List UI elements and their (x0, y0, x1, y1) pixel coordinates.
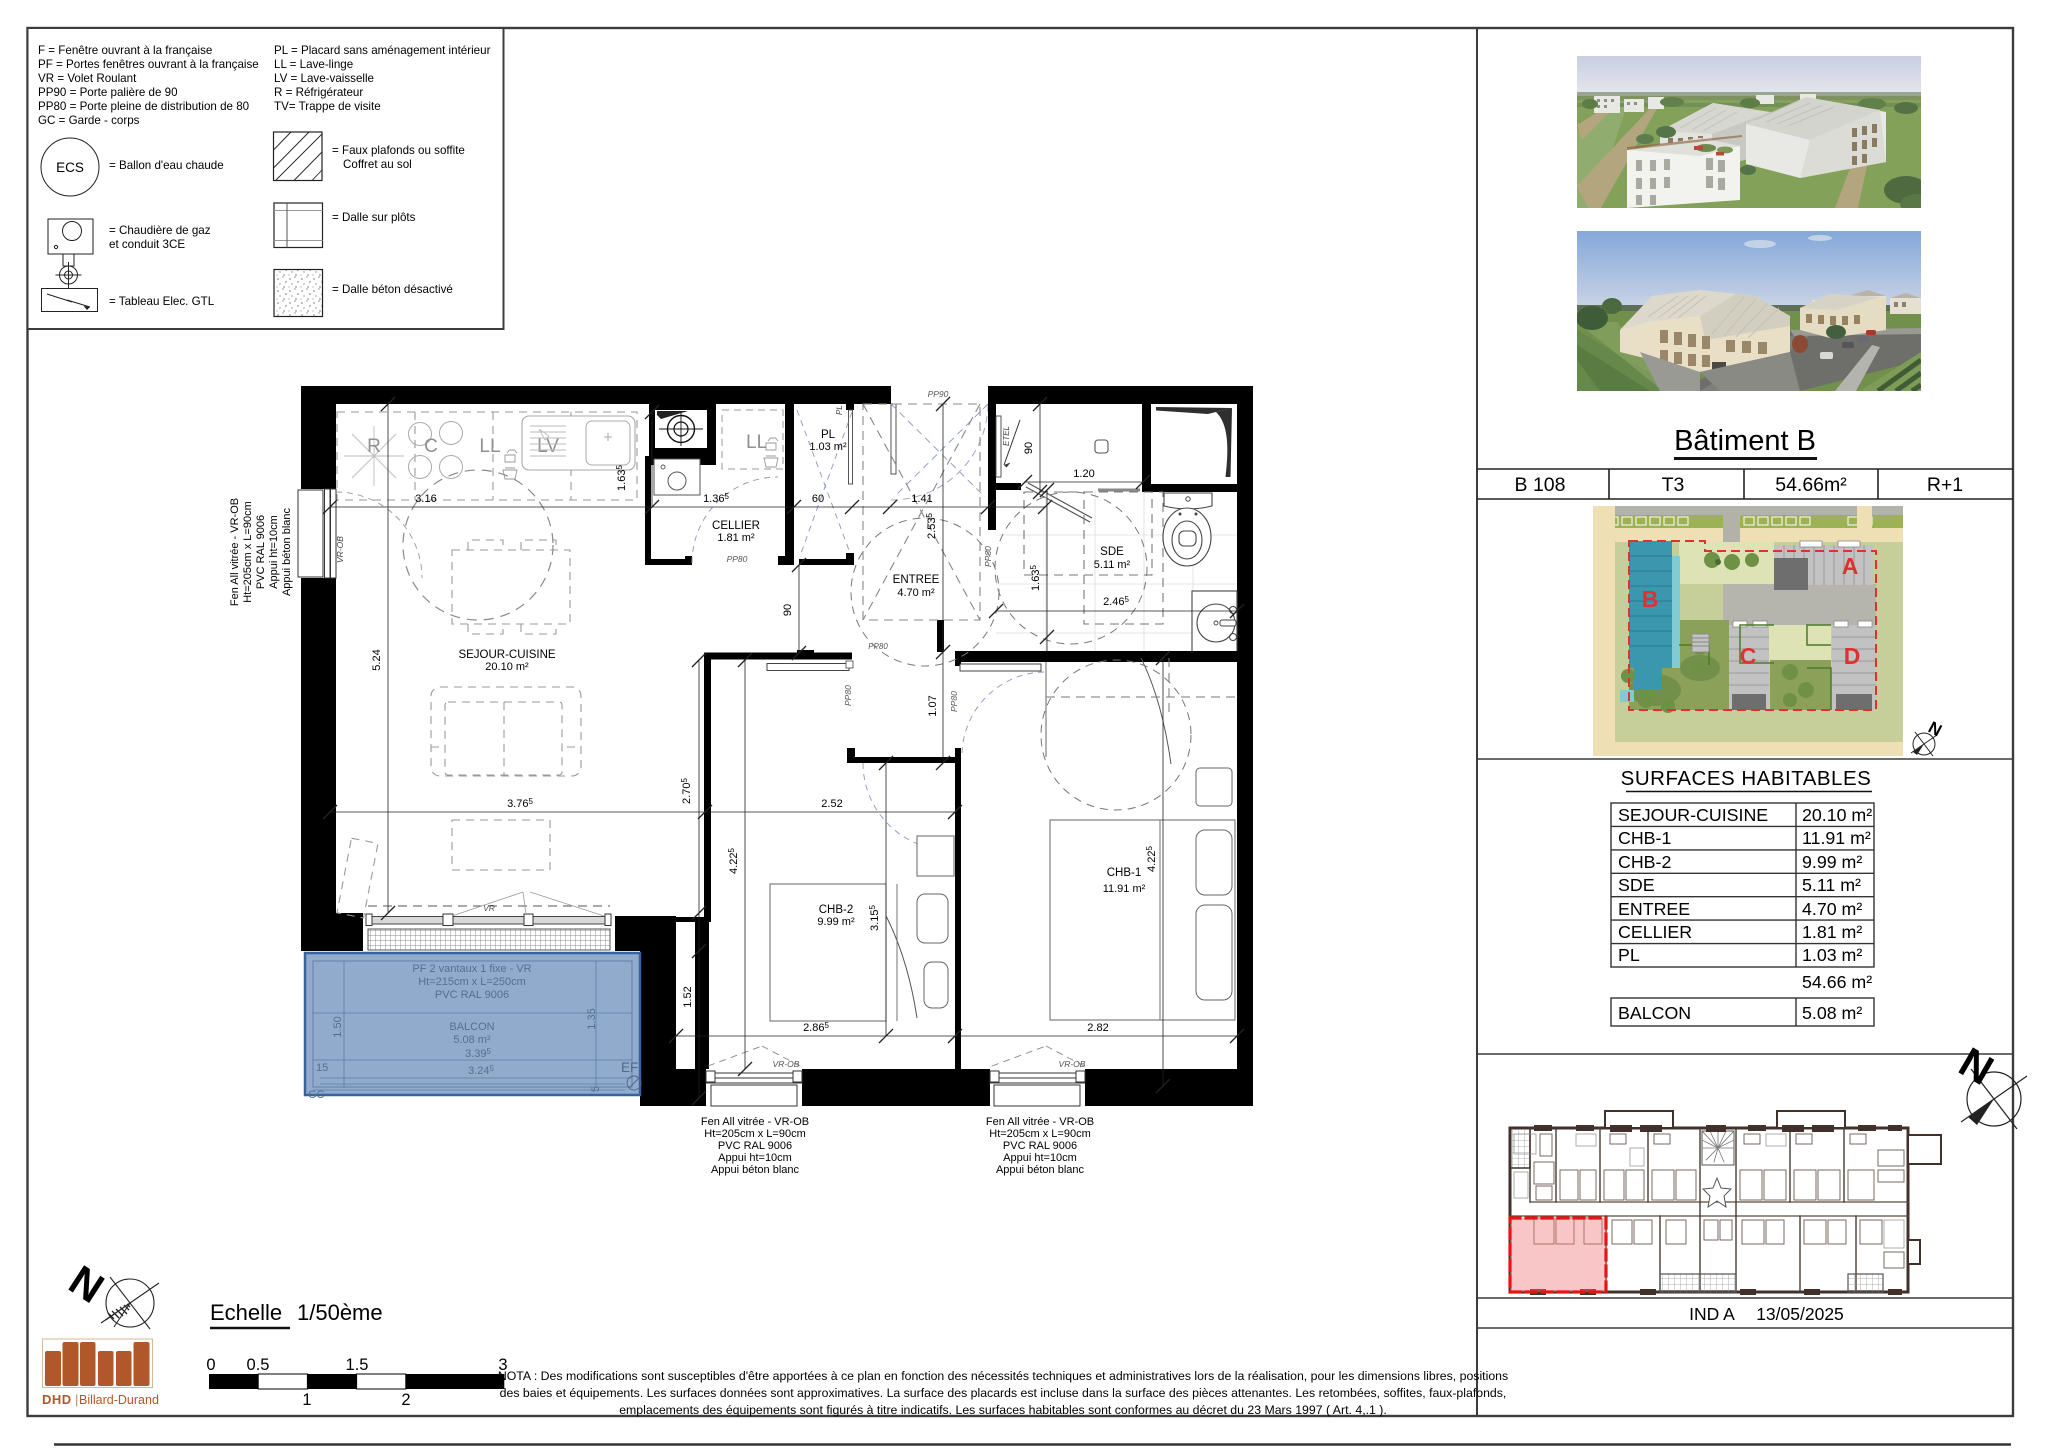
svg-text:PL: PL (1618, 945, 1640, 965)
svg-text:IND A: IND A (1689, 1304, 1735, 1324)
svg-text:LL = Lave-linge: LL = Lave-linge (274, 58, 353, 71)
svg-text:VR-OB: VR-OB (1059, 1059, 1086, 1069)
svg-text:R: R (367, 436, 381, 457)
svg-text:PF 2 vantaux 1 fixe - VR: PF 2 vantaux 1 fixe - VR (412, 963, 531, 975)
svg-text:5.08 m²: 5.08 m² (1802, 1003, 1862, 1023)
svg-text:20.10 m²: 20.10 m² (1802, 805, 1872, 825)
svg-text:1.81 m²: 1.81 m² (717, 532, 755, 544)
svg-text:N: N (1952, 1038, 2002, 1094)
svg-text:CELLIER: CELLIER (1618, 922, 1692, 942)
svg-text:B 108: B 108 (1515, 474, 1566, 496)
svg-text:5.08 m²: 5.08 m² (453, 1034, 491, 1046)
svg-text:1: 1 (302, 1391, 311, 1409)
svg-text:des baies et équipements. Les: des baies et équipements. Les surfaces d… (500, 1386, 1507, 1400)
svg-text:Ht=205cm x L=90cm: Ht=205cm x L=90cm (989, 1128, 1091, 1140)
svg-text:PP80 = Porte pleine de distrib: PP80 = Porte pleine de distribution de 8… (38, 100, 249, 113)
svg-text:= Tableau Elec. GTL: = Tableau Elec. GTL (109, 295, 215, 308)
svg-text:2.52: 2.52 (821, 798, 842, 810)
svg-text:11.91 m²: 11.91 m² (1103, 883, 1146, 895)
svg-text:3.765: 3.765 (507, 797, 533, 810)
svg-text:Coffret au sol: Coffret au sol (343, 158, 412, 171)
svg-text:Ht=215cm x L=250cm: Ht=215cm x L=250cm (418, 976, 526, 988)
svg-text:PF = Portes fenêtres ouvrant à: PF = Portes fenêtres ouvrant à la frança… (38, 58, 259, 71)
svg-text:1.03 m²: 1.03 m² (809, 441, 847, 453)
svg-text:LL: LL (746, 432, 767, 453)
svg-text:BALCON: BALCON (1618, 1003, 1691, 1023)
svg-text:Ht=205cm x L=90cm: Ht=205cm x L=90cm (704, 1128, 806, 1140)
svg-text:0: 0 (206, 1356, 215, 1374)
svg-text:TV= Trappe de visite: TV= Trappe de visite (274, 100, 381, 113)
svg-text:4.70 m²: 4.70 m² (897, 587, 935, 599)
svg-text:PP80: PP80 (949, 691, 959, 712)
svg-text:Fen All vitrée - VR-OB: Fen All vitrée - VR-OB (986, 1116, 1094, 1128)
svg-text:9.99 m²: 9.99 m² (817, 916, 855, 928)
svg-text:13/05/2025: 13/05/2025 (1756, 1304, 1844, 1324)
svg-text:= Faux plafonds ou soffite: = Faux plafonds ou soffite (332, 144, 465, 157)
svg-text:PP90: PP90 (928, 389, 949, 399)
svg-text:Appui ht=10cm: Appui ht=10cm (268, 515, 280, 589)
svg-text:1.07: 1.07 (927, 695, 939, 716)
svg-text:LV = Lave-vaisselle: LV = Lave-vaisselle (274, 72, 374, 85)
svg-text:SURFACES HABITABLES: SURFACES HABITABLES (1621, 767, 1872, 790)
svg-text:1.52: 1.52 (682, 986, 694, 1007)
svg-text:= Ballon d'eau chaude: = Ballon d'eau chaude (109, 159, 224, 172)
svg-text:NOTA : Des modifications sont: NOTA : Des modifications sont susceptibl… (498, 1369, 1508, 1383)
svg-text:CHB-1: CHB-1 (1107, 867, 1142, 879)
svg-text:N: N (1925, 718, 1945, 741)
svg-text:EF: EF (621, 1060, 638, 1075)
svg-text:1.635: 1.635 (1029, 565, 1042, 591)
svg-text:= Chaudière de gaz: = Chaudière de gaz (109, 224, 211, 237)
svg-text:5.24: 5.24 (371, 649, 383, 670)
svg-text:PP80: PP80 (983, 546, 993, 567)
svg-text:2: 2 (401, 1391, 410, 1409)
svg-text:PP80: PP80 (843, 685, 853, 706)
svg-text:90: 90 (782, 604, 794, 616)
svg-text:T3: T3 (1662, 474, 1685, 496)
svg-text:C: C (424, 436, 438, 457)
svg-text:54.66m²: 54.66m² (1775, 474, 1847, 496)
svg-text:3.16: 3.16 (415, 493, 436, 505)
svg-text:1.50: 1.50 (332, 1016, 344, 1037)
svg-text:N: N (61, 1256, 112, 1312)
svg-text:1.35: 1.35 (586, 1008, 598, 1029)
svg-text:BALCON: BALCON (449, 1021, 494, 1033)
svg-text:5: 5 (590, 1086, 602, 1092)
svg-text:et conduit 3CE: et conduit 3CE (109, 238, 185, 251)
svg-text:ECS: ECS (56, 160, 84, 175)
svg-text:PL: PL (835, 405, 844, 415)
svg-text:1.81 m²: 1.81 m² (1802, 922, 1862, 942)
svg-text:ENTREE: ENTREE (893, 574, 940, 586)
svg-text:2.535: 2.535 (925, 513, 938, 539)
svg-text:Appui béton blanc: Appui béton blanc (996, 1164, 1085, 1176)
svg-text:SDE: SDE (1618, 875, 1655, 895)
svg-text:GC = Garde - corps: GC = Garde - corps (38, 114, 140, 127)
svg-text:1/50ème: 1/50ème (297, 1300, 383, 1325)
svg-text:2.465: 2.465 (1103, 595, 1129, 608)
svg-text:PVC RAL 9006: PVC RAL 9006 (1003, 1140, 1077, 1152)
svg-text:Appui ht=10cm: Appui ht=10cm (718, 1152, 792, 1164)
svg-text:Bâtiment B: Bâtiment B (1674, 425, 1816, 457)
svg-text:VR-OB: VR-OB (773, 1059, 800, 1069)
svg-text:15: 15 (316, 1062, 328, 1074)
svg-text:4.70 m²: 4.70 m² (1802, 899, 1862, 919)
svg-text:Fen All vitrée - VR-OB: Fen All vitrée - VR-OB (229, 498, 241, 606)
svg-text:4.225: 4.225 (727, 848, 740, 874)
svg-text:GC: GC (308, 1089, 325, 1101)
svg-text:5.11 m²: 5.11 m² (1802, 875, 1861, 895)
svg-text:Appui béton blanc: Appui béton blanc (281, 507, 293, 596)
svg-text:LV: LV (537, 436, 559, 457)
svg-text:1.03 m²: 1.03 m² (1802, 945, 1862, 965)
svg-text:PP80: PP80 (727, 554, 748, 564)
svg-text:SDE: SDE (1100, 546, 1124, 558)
svg-text:DHD: DHD (42, 1392, 72, 1407)
svg-text:C: C (1740, 643, 1757, 669)
svg-text:VR = Volet Roulant: VR = Volet Roulant (38, 72, 137, 85)
svg-text:PVC RAL 9006: PVC RAL 9006 (718, 1140, 792, 1152)
svg-text:1.41: 1.41 (911, 493, 932, 505)
svg-text:PL = Placard sans aménagement: PL = Placard sans aménagement intérieur (274, 44, 491, 57)
svg-text:SEJOUR-CUISINE: SEJOUR-CUISINE (1618, 805, 1768, 825)
svg-text:D: D (1844, 643, 1861, 669)
svg-text:PVC RAL 9006: PVC RAL 9006 (435, 989, 509, 1001)
svg-text:60: 60 (812, 493, 824, 505)
svg-text:Ht=205cm x L=90cm: Ht=205cm x L=90cm (242, 501, 254, 603)
svg-text:1.365: 1.365 (703, 492, 729, 505)
svg-text:= Dalle sur plôts: = Dalle sur plôts (332, 211, 416, 224)
svg-text:0.5: 0.5 (247, 1356, 270, 1374)
svg-text:Billard-Durand: Billard-Durand (79, 1393, 159, 1407)
svg-text:VR: VR (483, 903, 495, 913)
svg-text:1.20: 1.20 (1073, 468, 1094, 480)
svg-text:|: | (75, 1392, 78, 1407)
svg-text:ENTREE: ENTREE (1618, 899, 1690, 919)
svg-text:CELLIER: CELLIER (712, 520, 760, 532)
svg-text:A: A (1842, 553, 1859, 579)
svg-text:9.99 m²: 9.99 m² (1802, 852, 1862, 872)
svg-text:2.82: 2.82 (1087, 1022, 1108, 1034)
svg-text:F = Fenêtre ouvrant à la franç: F = Fenêtre ouvrant à la française (38, 44, 212, 57)
svg-text:20.10 m²: 20.10 m² (485, 661, 529, 673)
svg-text:Echelle: Echelle (210, 1300, 282, 1325)
svg-text:PP90 = Porte palière de 90: PP90 = Porte palière de 90 (38, 86, 178, 99)
svg-text:1.5: 1.5 (346, 1356, 369, 1374)
svg-text:VR-OB: VR-OB (335, 536, 345, 563)
svg-text:2.705: 2.705 (680, 778, 693, 804)
svg-text:SEJOUR-CUISINE: SEJOUR-CUISINE (458, 649, 555, 661)
svg-text:B: B (1642, 586, 1659, 612)
svg-text:ETEL: ETEL (1002, 426, 1011, 446)
svg-text:5.11 m²: 5.11 m² (1094, 559, 1131, 571)
svg-text:= Dalle béton désactivé: = Dalle béton désactivé (332, 283, 453, 296)
svg-text:emplacements des équipements s: emplacements des équipements sont figuré… (619, 1403, 1387, 1417)
svg-text:Fen All vitrée - VR-OB: Fen All vitrée - VR-OB (701, 1116, 809, 1128)
svg-text:PVC RAL 9006: PVC RAL 9006 (255, 515, 267, 589)
svg-text:CHB-2: CHB-2 (819, 904, 854, 916)
svg-text:54.66 m²: 54.66 m² (1802, 972, 1872, 992)
svg-text:PL: PL (821, 429, 836, 441)
svg-text:90: 90 (1023, 442, 1035, 454)
svg-text:2.865: 2.865 (803, 1021, 829, 1034)
svg-text:Appui béton blanc: Appui béton blanc (711, 1164, 800, 1176)
svg-text:CHB-1: CHB-1 (1618, 828, 1671, 848)
svg-text:R+1: R+1 (1927, 474, 1963, 496)
svg-text:Appui ht=10cm: Appui ht=10cm (1003, 1152, 1077, 1164)
svg-text:R = Réfrigérateur: R = Réfrigérateur (274, 86, 363, 99)
svg-text:LL: LL (479, 436, 500, 457)
svg-text:CHB-2: CHB-2 (1618, 852, 1671, 872)
svg-text:11.91 m²: 11.91 m² (1802, 828, 1871, 848)
